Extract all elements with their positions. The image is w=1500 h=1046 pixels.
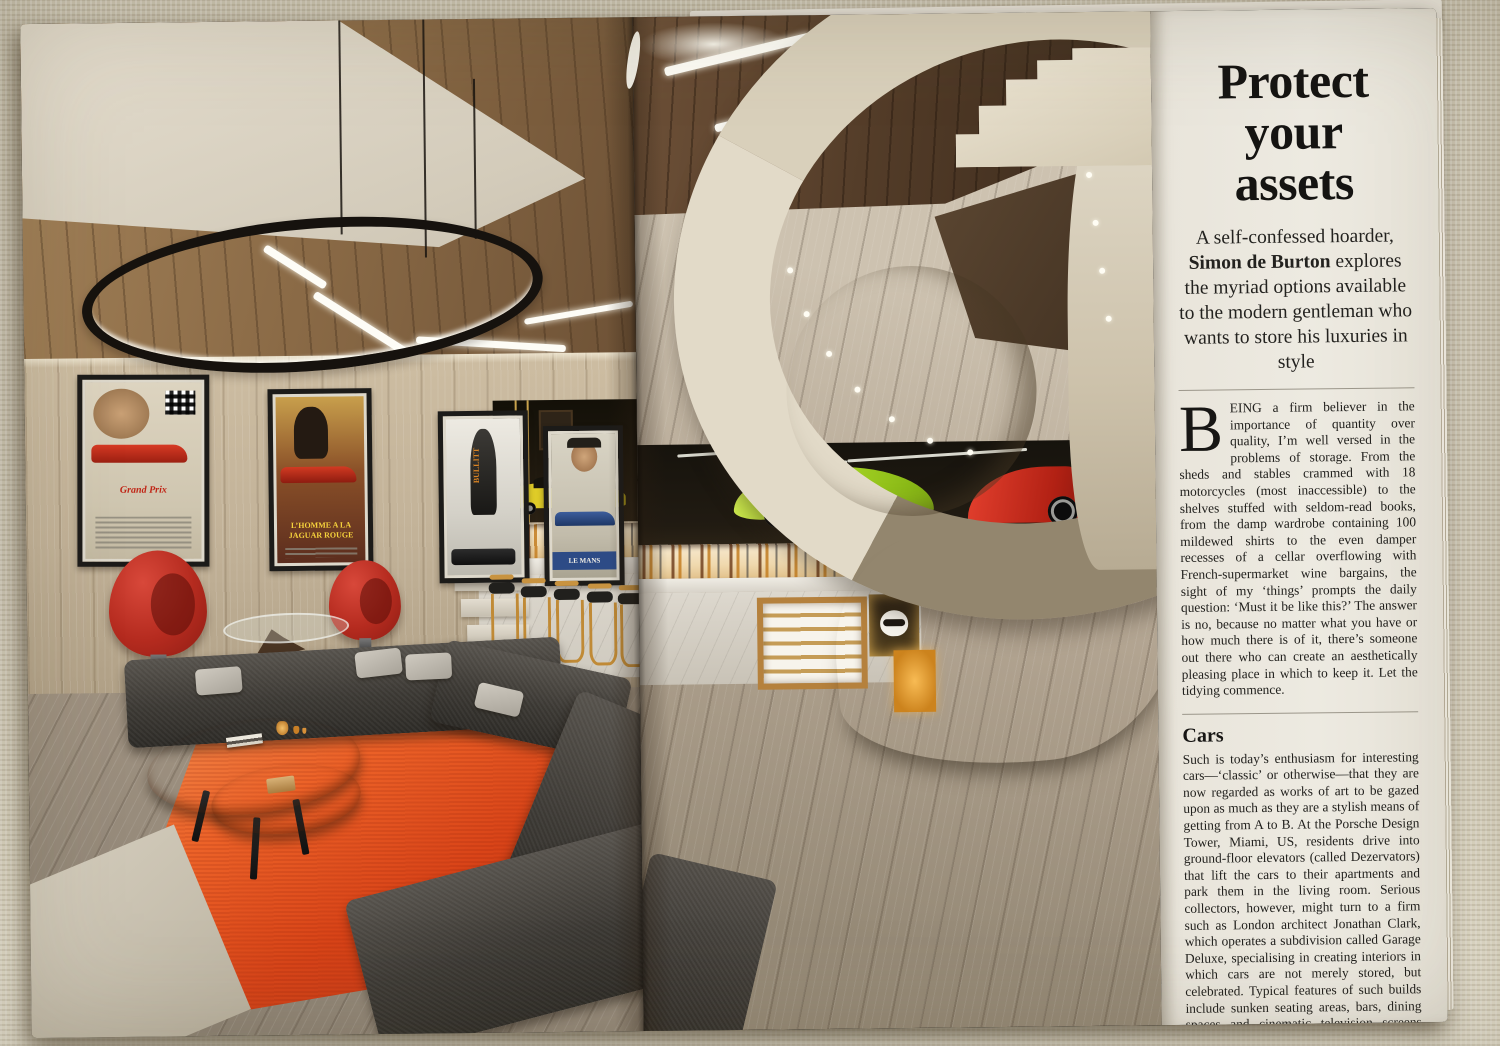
stair-edge-light <box>1086 172 1092 178</box>
bar-stool <box>587 583 614 667</box>
drop-cap: B <box>1179 400 1231 457</box>
right-page: Protect your assets A self-confessed hoa… <box>632 8 1447 1031</box>
checkered-flag-graphic <box>165 391 195 415</box>
garage-photo-right <box>632 11 1161 1031</box>
stair-edge-light <box>1099 268 1105 274</box>
stair-edge-light <box>804 311 810 317</box>
section-rule <box>1179 387 1415 391</box>
title-line: your <box>1175 105 1412 159</box>
red-jaguar-graphic <box>280 466 356 483</box>
poster-art: Grand Prix <box>85 383 201 559</box>
standfirst: A self-confessed hoarder, Simon de Burto… <box>1177 223 1415 376</box>
glass-top <box>223 610 350 646</box>
stair-edge-light <box>967 449 973 455</box>
poster-title: Grand Prix <box>85 485 201 496</box>
stair-edge-light <box>1093 220 1099 226</box>
magazine-spread: Grand Prix L’HOMME A LA JAGUAR ROUGE BUL… <box>20 8 1447 1038</box>
poster-title: BULLITT <box>471 421 481 509</box>
poster-credits-text <box>95 517 191 551</box>
race-car-graphic <box>555 511 615 526</box>
poster-art: L’HOMME A LA JAGUAR ROUGE <box>276 396 366 563</box>
poster-title: L’HOMME A LA JAGUAR ROUGE <box>277 520 365 541</box>
figure-graphic <box>294 407 329 459</box>
poster-bullitt: BULLITT <box>438 410 530 583</box>
author-name: Simon de Burton <box>1189 251 1331 274</box>
sofa-cushion <box>354 647 403 678</box>
title-line: Protect <box>1175 54 1412 108</box>
left-page: Grand Prix L’HOMME A LA JAGUAR ROUGE BUL… <box>20 17 643 1038</box>
cap-graphic <box>567 438 601 448</box>
stair-edge-light <box>927 438 933 444</box>
stair-edge-light <box>854 387 860 393</box>
article-title: Protect your assets <box>1175 54 1413 210</box>
skylight-glow <box>638 21 788 67</box>
body-paragraph-2: Such is today’s enthusiasm for interesti… <box>1183 749 1423 1031</box>
title-line: assets <box>1176 156 1413 210</box>
poster-jaguar-rouge: L’HOMME A LA JAGUAR ROUGE <box>267 388 373 571</box>
article-column: Protect your assets A self-confessed hoa… <box>1150 8 1447 1025</box>
body-text: Such is today’s enthusiasm for interesti… <box>1183 749 1422 1031</box>
photo-of-magazine-spread: Grand Prix L’HOMME A LA JAGUAR ROUGE BUL… <box>0 0 1500 1046</box>
standfirst-text: A self-confessed hoarder, <box>1196 225 1394 248</box>
car-graphic <box>451 548 515 565</box>
section-rule <box>1182 711 1418 715</box>
sofa-cushion <box>195 666 243 696</box>
poster-credits-text <box>285 547 357 558</box>
stair-edge-light <box>826 351 832 357</box>
stair-edge-light <box>787 267 793 273</box>
stair-edge-light <box>1106 316 1112 322</box>
poster-grand-prix: Grand Prix <box>77 375 209 567</box>
ceiling-light-strip <box>524 301 633 325</box>
poster-art: BULLITT <box>446 418 522 575</box>
driver-portrait-graphic <box>93 389 149 439</box>
staircase-cream-wall <box>1065 99 1156 570</box>
race-car-graphic <box>91 445 187 463</box>
section-heading-cars: Cars <box>1182 722 1418 748</box>
decanter-and-glasses <box>276 721 288 735</box>
stair-edge-light <box>889 416 895 422</box>
body-paragraph-1: BEING a firm believer in the importance … <box>1179 398 1418 699</box>
sofa-cushion <box>405 652 452 680</box>
poster-art: LE MANS <box>551 433 617 578</box>
poster-title: LE MANS <box>552 556 616 565</box>
poster-le-mans: LE MANS <box>543 425 625 586</box>
